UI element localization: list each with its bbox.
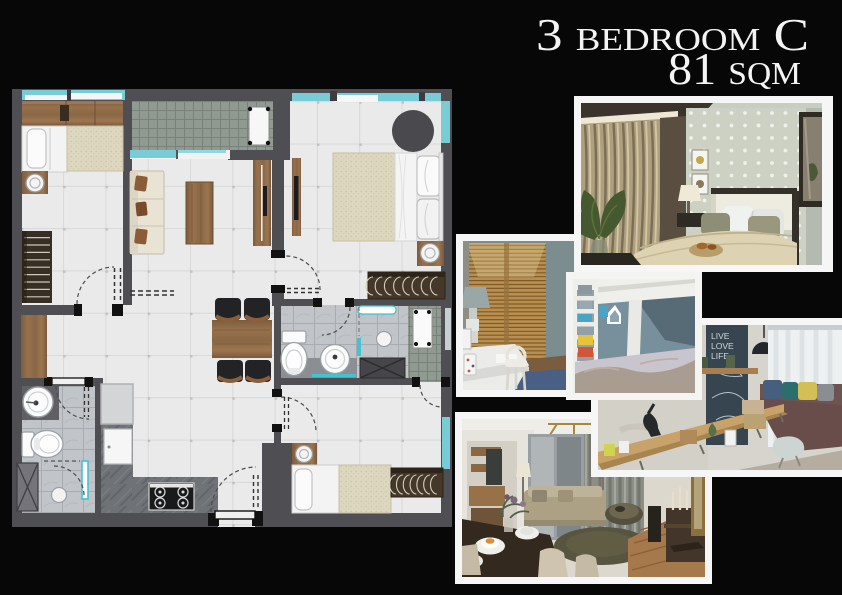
svg-text:81 sqm: 81 sqm [668,43,801,94]
svg-text:LIVE: LIVE [711,331,730,341]
svg-text:LOVE: LOVE [711,341,734,351]
